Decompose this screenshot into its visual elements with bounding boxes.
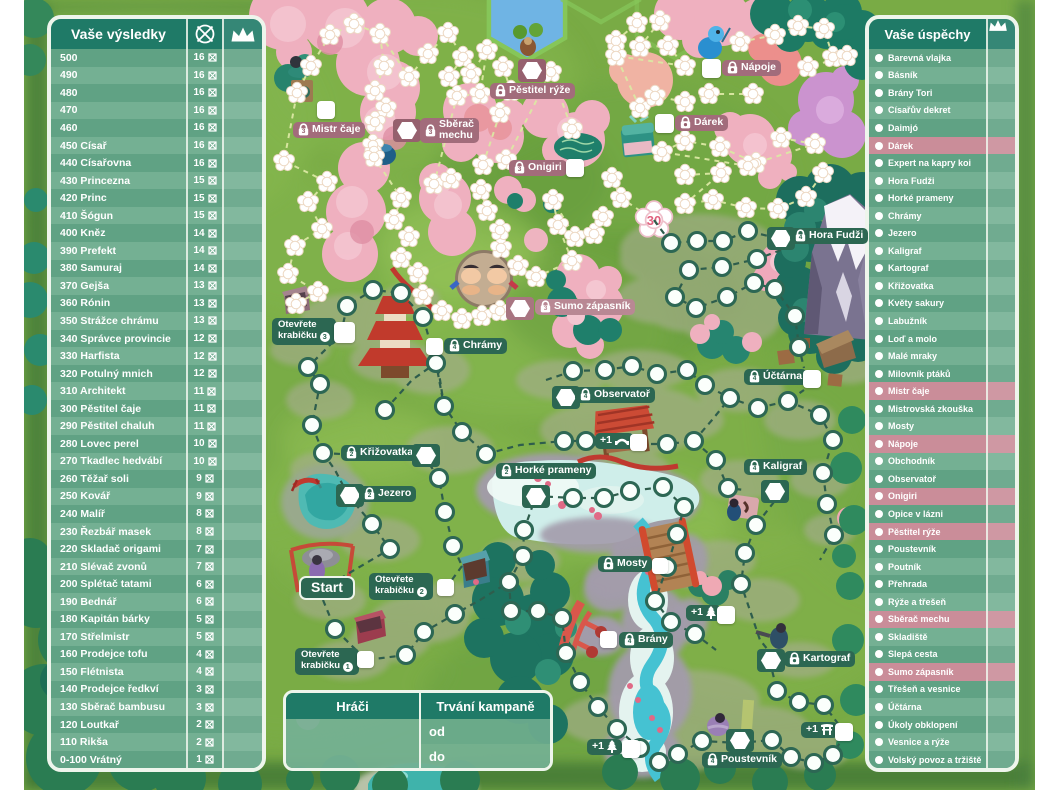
svg-text:4: 4 — [584, 393, 588, 400]
svg-text:4: 4 — [628, 638, 632, 645]
svg-text:2: 2 — [368, 492, 372, 499]
svg-text:2: 2 — [505, 469, 509, 476]
svg-text:4: 4 — [711, 758, 715, 765]
svg-text:4: 4 — [799, 234, 803, 241]
svg-text:4: 4 — [753, 465, 757, 472]
svg-text:3: 3 — [302, 128, 306, 135]
svg-text:4: 4 — [753, 375, 757, 382]
svg-text:2: 2 — [350, 451, 354, 458]
svg-text:3: 3 — [429, 129, 433, 136]
svg-text:4: 4 — [453, 344, 457, 351]
svg-text:3: 3 — [544, 305, 548, 312]
svg-text:3: 3 — [518, 166, 522, 173]
